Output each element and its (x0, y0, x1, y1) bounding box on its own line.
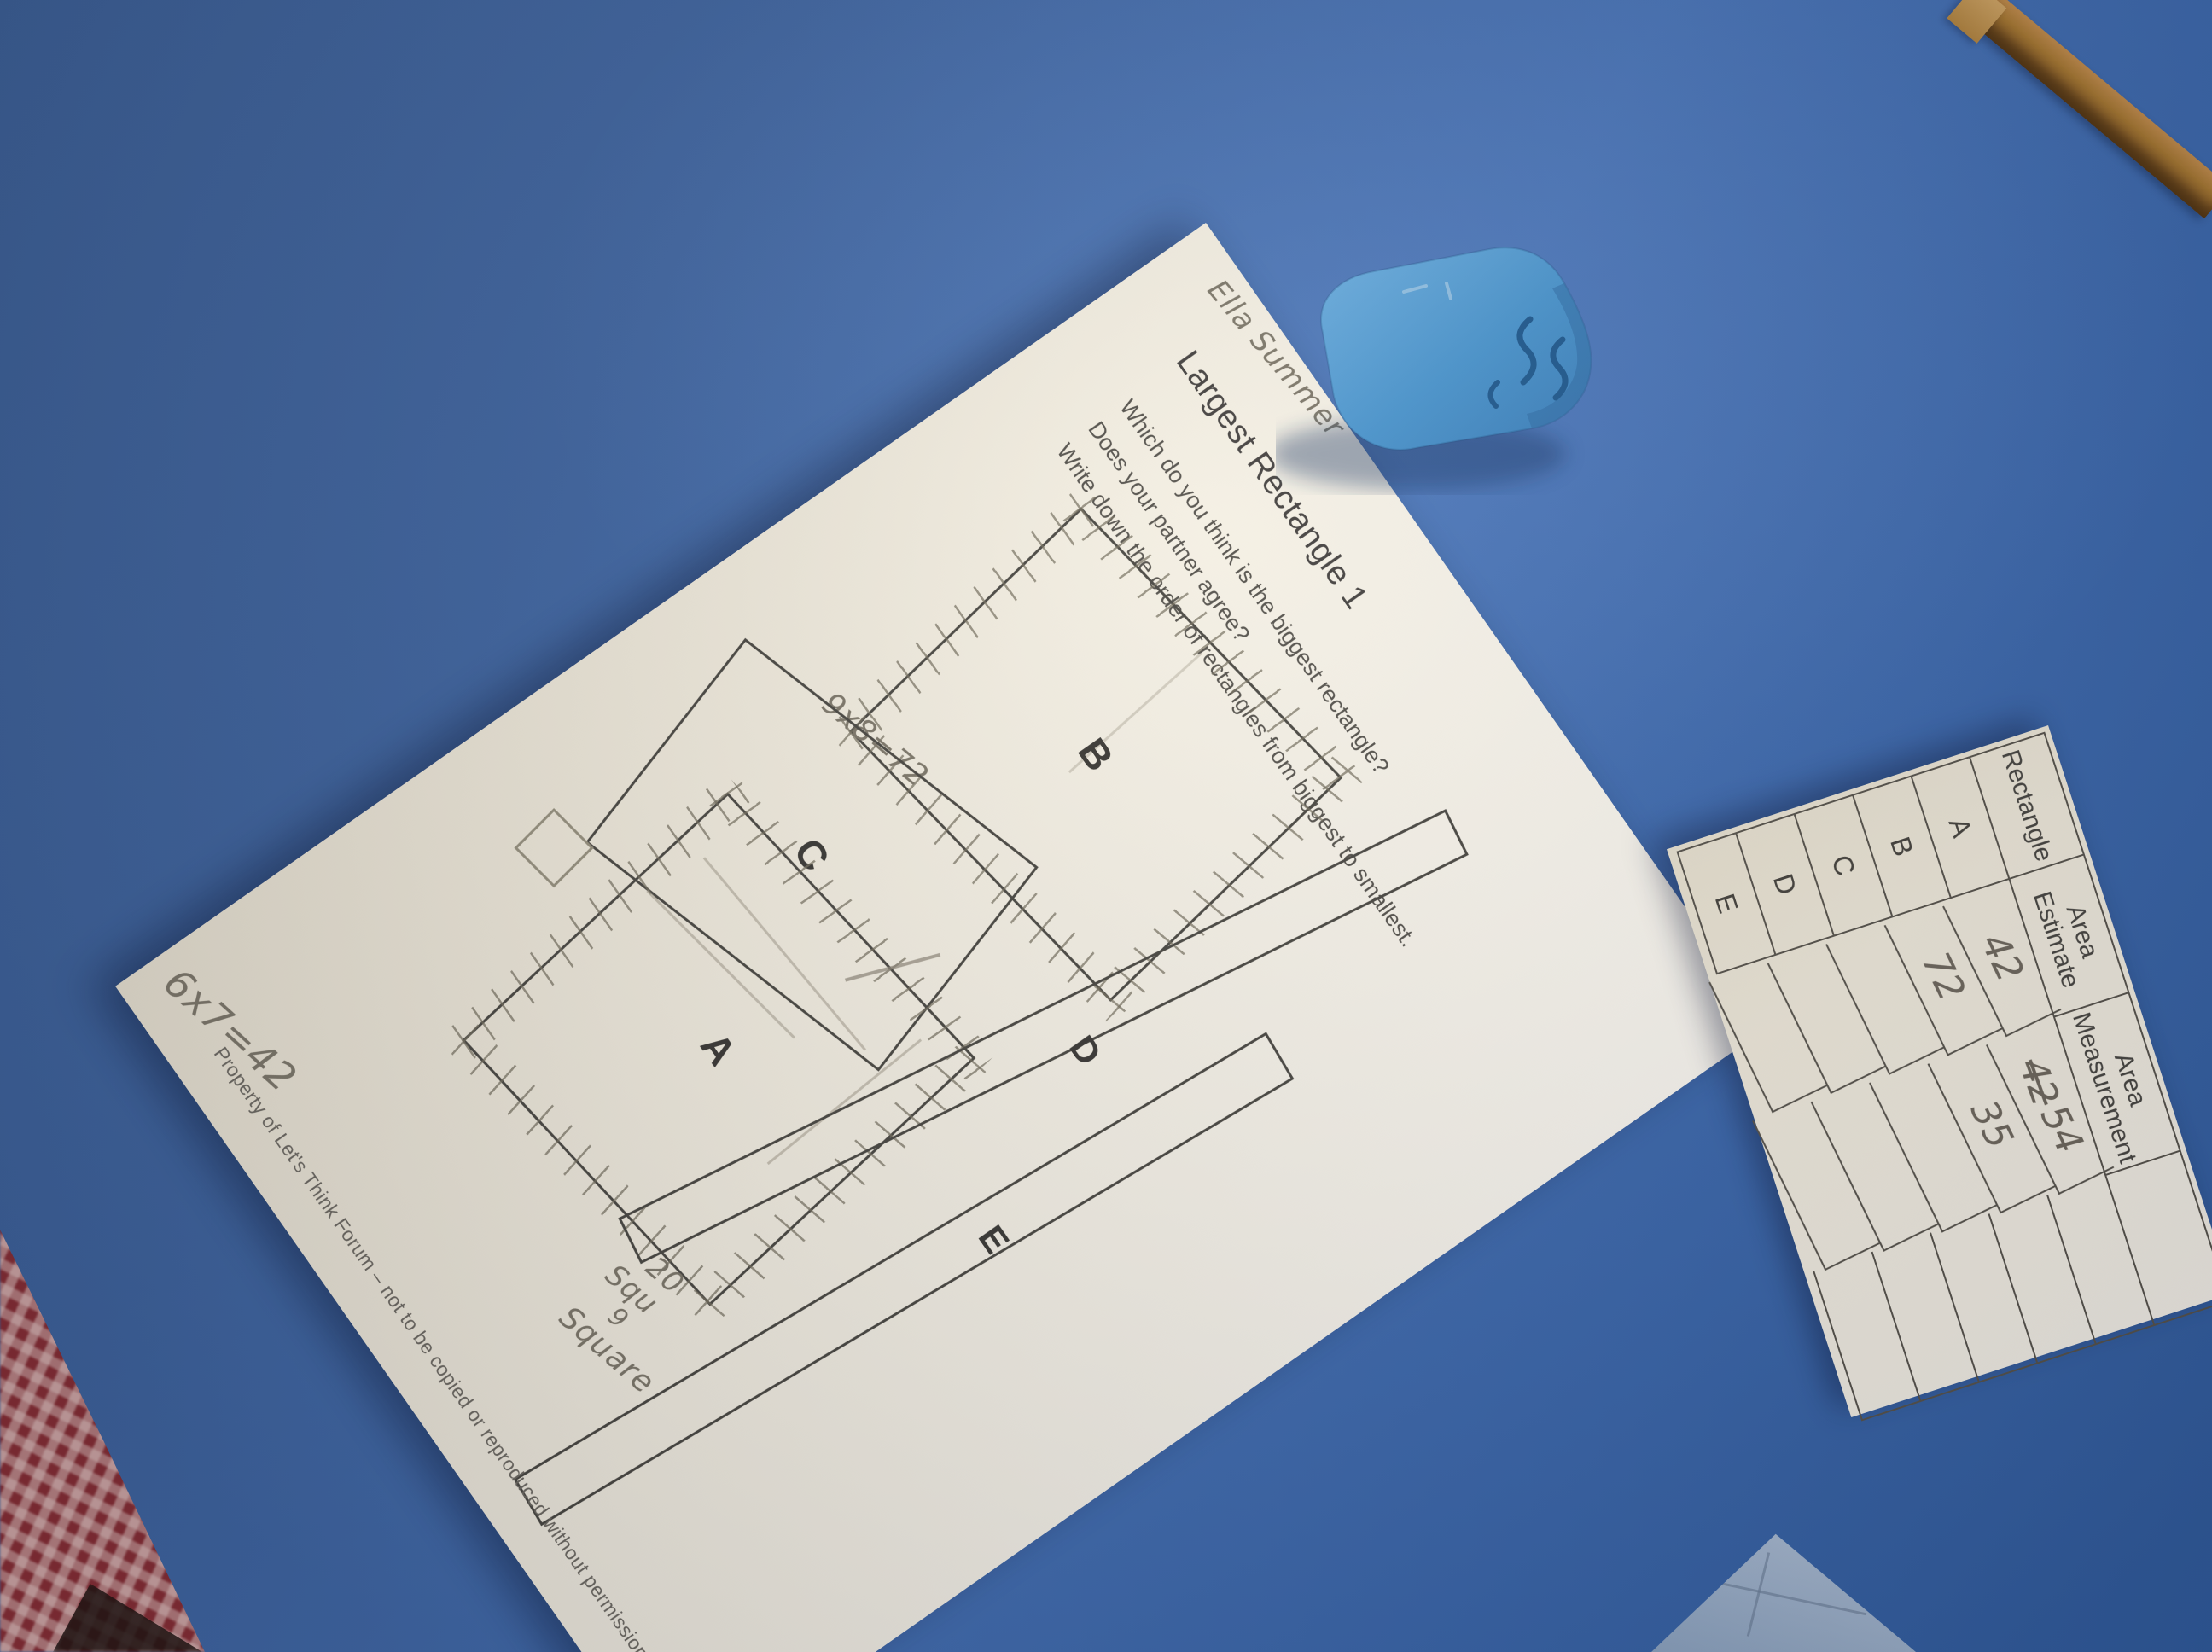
pencil-stroke-a2 (647, 889, 795, 1038)
small-pencil-square (514, 808, 593, 887)
row-a-measurement-crossed: 42 (2010, 1051, 2067, 1111)
photo-classroom-table: Ella Summer Largest Rectangle 1 Which do… (0, 0, 2212, 1652)
results-table-sheet: Rectangle Area Estimate Area Measurement… (1667, 725, 2212, 1417)
blue-eraser (1276, 239, 1643, 495)
tick-marks-a-left (442, 772, 751, 1064)
results-table: Rectangle Area Estimate Area Measurement… (1676, 732, 2212, 1422)
rectangle-a-label: A (692, 1024, 746, 1073)
gingham-fabric (0, 1193, 265, 1652)
row-a-measurement-value: 54 (2032, 1098, 2092, 1160)
blue-paper-scrap (1651, 1529, 1916, 1652)
scrap-pencil-line-1 (1747, 1552, 1770, 1636)
wooden-stick (1969, 0, 2212, 218)
scrap-pencil-line-2 (1711, 1580, 1866, 1615)
rectangle-b-label: B (1068, 730, 1122, 779)
